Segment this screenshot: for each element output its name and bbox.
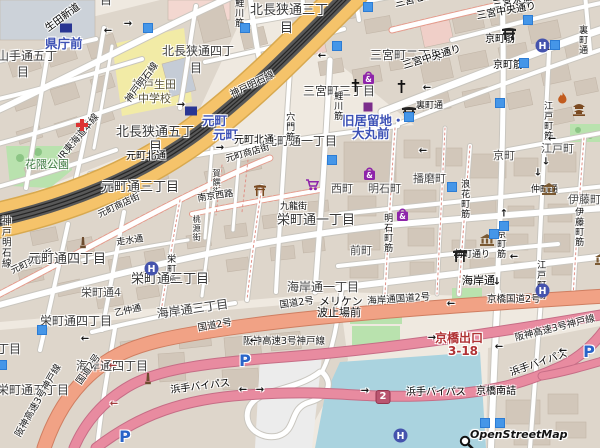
map-label: 波止場前 xyxy=(317,307,361,318)
map-label: 裏町通 xyxy=(577,25,586,55)
map-label: 丁目 xyxy=(0,343,21,355)
poi-square-icon xyxy=(240,23,250,33)
parking-icon: P xyxy=(119,429,131,445)
map-label: 京橋南詰 xyxy=(476,387,516,397)
map-label: 山手通五丁 xyxy=(0,50,57,62)
map-label: 栄町通三丁目 xyxy=(131,273,209,286)
poi-square-icon xyxy=(332,41,342,51)
oneway-arrow: ↓ xyxy=(542,157,550,168)
oneway-arrow: → xyxy=(216,143,224,154)
map-label: 海岸通 xyxy=(462,275,495,286)
oneway-arrow: → xyxy=(361,386,369,397)
map-label: 浪花町筋 xyxy=(459,179,468,219)
poi-square-icon xyxy=(519,58,529,68)
poi-square-icon xyxy=(404,112,414,122)
oneway-arrow: ← xyxy=(104,26,112,37)
map-label: 伊藤町筋 xyxy=(573,207,582,247)
map-label: 目 xyxy=(190,62,202,74)
oneway-arrow: → xyxy=(256,385,264,396)
map-label: 元町通三丁目 xyxy=(101,181,179,194)
oneway-arrow: ← xyxy=(318,51,326,62)
oneway-arrow: ← xyxy=(250,336,258,347)
map-label: 目 xyxy=(100,0,112,6)
poi-square-icon xyxy=(143,23,153,33)
map-label: 元町通一丁目 xyxy=(265,135,337,147)
map-label: 京橋国道2号 xyxy=(487,295,541,305)
poi-square-icon xyxy=(447,182,457,192)
map-label: 大丸前 xyxy=(352,128,390,141)
parking-icon: P xyxy=(239,353,251,369)
map-label: 江戸町 xyxy=(541,143,574,154)
oneway-arrow: ← xyxy=(419,146,427,157)
svg-text:&: & xyxy=(366,171,373,180)
map-label: 県庁前 xyxy=(45,38,83,51)
poi-square-icon xyxy=(489,229,499,239)
poi-square-icon xyxy=(37,325,47,335)
map-label: 目 xyxy=(17,66,29,78)
oneway-arrow: ← xyxy=(559,346,567,357)
map-label: 元町 xyxy=(202,115,227,128)
map-label: 穴門筋 xyxy=(284,112,293,142)
map-label: 3-18 xyxy=(448,345,478,357)
map-label: 元町北通 xyxy=(126,152,166,162)
poi-square-icon xyxy=(327,155,337,165)
map-label: 裏町通 xyxy=(416,102,443,111)
map-label: 京町 xyxy=(493,150,515,161)
oneway-arrow: → xyxy=(428,333,436,344)
map-label: 伊藤町 xyxy=(568,194,600,205)
map-label: 前町 xyxy=(350,245,372,256)
svg-text:H: H xyxy=(539,286,547,297)
route-shield: 2 xyxy=(376,390,391,404)
railway-station-icon xyxy=(60,24,72,33)
map-viewport[interactable]: OpenStreetMap 山手通五丁目県庁前目北長狭通四丁目北長狭通三丁目生田… xyxy=(0,0,600,448)
map-label: 海岸通一丁目 xyxy=(287,281,359,293)
poi-square-icon xyxy=(499,221,509,231)
poi-purple-icon xyxy=(364,103,373,112)
map-label: 鯉川筋 xyxy=(332,91,341,121)
svg-text:&: & xyxy=(399,212,406,221)
poi-square-icon xyxy=(495,98,505,108)
map-label: 花隈公園 xyxy=(25,159,69,170)
oneway-arrow: ↓ xyxy=(534,168,542,179)
osm-attribution: OpenStreetMap xyxy=(470,428,568,441)
parking-icon: P xyxy=(583,344,595,360)
poi-square-icon xyxy=(550,40,560,50)
oneway-arrow: ← xyxy=(110,399,118,410)
poi-square-icon xyxy=(523,15,533,25)
map-label: 北長狭通三丁 xyxy=(250,4,328,17)
map-label: 西町 xyxy=(331,183,353,194)
map-label: 栄町通4 xyxy=(81,287,121,298)
map-label: 北長狭通五丁 xyxy=(116,126,194,139)
oneway-arrow: → xyxy=(177,100,185,111)
poi-square-icon xyxy=(0,360,7,370)
poi-square-icon xyxy=(480,418,490,428)
map-label: 栄町通一丁目 xyxy=(277,214,355,227)
oneway-arrow: ↑ xyxy=(500,209,508,220)
map-label: 桃源街 xyxy=(192,215,200,242)
map-label: 九龍街 xyxy=(280,203,307,212)
map-label: 明石町筋 xyxy=(382,213,391,253)
map-label: 神戸明石線 xyxy=(0,216,10,269)
poi-square-icon xyxy=(495,418,505,428)
map-label: 目 xyxy=(280,22,293,35)
oneway-arrow: ← xyxy=(423,83,431,94)
map-label: 北長狭通四丁 xyxy=(162,45,234,57)
railway-station-icon xyxy=(185,107,197,116)
svg-text:H: H xyxy=(397,431,405,442)
oneway-arrow: ← xyxy=(447,299,455,310)
map-label: 播磨町 xyxy=(413,173,446,184)
oneway-arrow: ← xyxy=(109,361,117,372)
oneway-arrow: ← xyxy=(495,342,503,353)
oneway-arrow: ↓ xyxy=(493,277,501,288)
map-label: 中学校 xyxy=(138,93,171,104)
oneway-arrow: ← xyxy=(548,134,556,145)
oneway-arrow: ← xyxy=(81,334,89,345)
svg-text:&: & xyxy=(365,75,372,84)
map-label: 浜手バイパス xyxy=(406,388,466,398)
map-label: 栄町通四丁目 xyxy=(40,315,112,327)
oneway-arrow: ← xyxy=(510,252,518,263)
map-label: 元町通四丁目 xyxy=(28,253,106,266)
svg-text:H: H xyxy=(148,264,156,275)
map-label: 明石町 xyxy=(368,183,401,194)
map-label: 京橋出口 xyxy=(435,332,483,344)
oneway-arrow: ← xyxy=(239,385,247,396)
svg-text:H: H xyxy=(539,41,547,52)
oneway-arrow: → xyxy=(124,19,132,30)
poi-square-icon xyxy=(363,2,373,12)
